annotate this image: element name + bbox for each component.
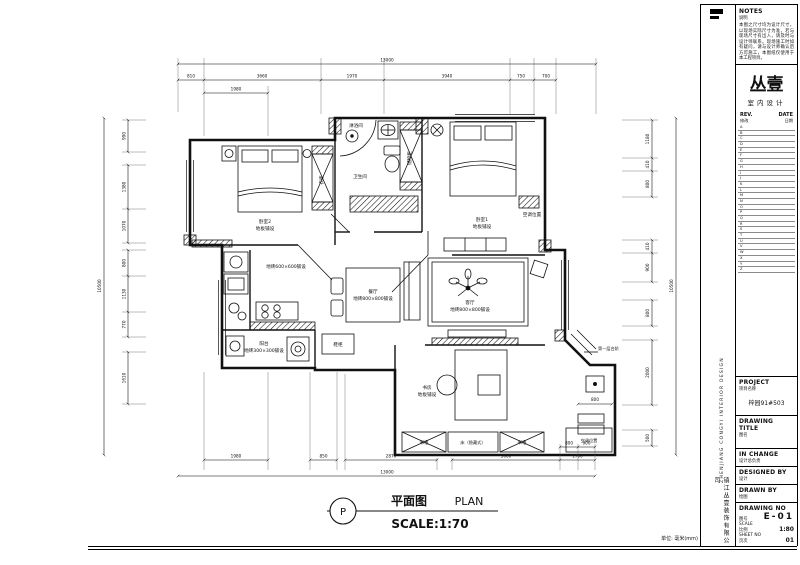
company-name-cn: 镇江丛壹装饰有限公司 [712, 477, 730, 549]
outer-walls [190, 118, 615, 455]
dim-right-7: 2000 [645, 367, 650, 378]
in-change-label: IN CHANGE [739, 451, 794, 458]
revision-rows: ABCDEFGHIJKLMNOPQRSTUVWXYZ [736, 125, 797, 273]
in-change-label-cn: 设计总负责 [739, 458, 794, 464]
drawn-by-section: DRAWN BY 绘图 [736, 484, 797, 502]
label-wardrobe: 衣柜 [318, 175, 325, 185]
dim-right-overall: 10500 [669, 279, 674, 293]
label-dining-floor: 地砖800×800铺设 [353, 295, 393, 302]
label-living-floor: 地砖800×800铺设 [450, 306, 490, 313]
dim-left-5: 1130 [122, 288, 127, 299]
notes-title: NOTES [739, 8, 794, 15]
plan-title-scale: SCALE:1:70 [391, 517, 468, 531]
drawn-by-label: DRAWN BY [739, 487, 794, 494]
dim-right-3: 800 [645, 180, 650, 188]
living-rug-icon [428, 258, 548, 337]
drawing-title-section: DRAWING TITLE 图名 [736, 415, 797, 448]
dim-left-overall: 10500 [97, 279, 102, 293]
label-shoe-cabinet: 鞋柜 [333, 341, 343, 348]
notes-subtitle: 说明 [739, 15, 794, 21]
kitchen-counter-icon [224, 252, 298, 320]
label-living: 客厅 [465, 299, 475, 306]
bed2-icon [222, 146, 311, 212]
scale-label: SCALE [739, 522, 753, 527]
label-study-floor: 地板铺设 [418, 391, 437, 398]
drawing-sheet: 卧室2 地板铺设 衣柜 淋浴间 卫生间 储物柜 卧室1 地板铺设 空调位置 地砖… [0, 0, 800, 565]
dim-bottom-7: 1700 [572, 454, 583, 459]
sheet-no-label: SHEET NO [739, 533, 761, 538]
label-study: 书房 [422, 384, 432, 391]
label-bedroom1: 卧室1 [476, 216, 488, 223]
plan-title-marker: P [340, 507, 346, 518]
sheet-bottom-border [88, 546, 797, 550]
project-value: 梓园91#503 [739, 398, 794, 407]
dim-left-3: 1070 [122, 220, 127, 231]
sheet-no-label-cn: 页次 [739, 539, 748, 544]
drawing-no-section: DRAWING NO 图号 E-01 SCALE 比例 1:80 SHEET N… [736, 502, 797, 546]
dimension-texts: 13000 810 3660 1970 3940 750 700 1980 19… [97, 58, 674, 475]
toilet-icon [384, 146, 400, 172]
designed-by-label: DESIGNED BY [739, 469, 794, 476]
registration-mark [710, 9, 723, 14]
revision-header-cn: 修改 日期 [736, 118, 797, 125]
dim-right-1: 1180 [645, 133, 650, 144]
date-label-cn: 日期 [785, 118, 793, 124]
label-balcony: 阳台 [259, 340, 269, 347]
dim-right-2: 410 [645, 160, 650, 168]
interior-walls [222, 118, 545, 370]
brand-logo: 丛壹 [736, 70, 797, 95]
title-block-panel: ZHENJIANG CONGYI INTERIOR DESIGN 镇江丛壹装饰有… [700, 4, 798, 546]
dim-top-4: 3940 [442, 74, 453, 79]
plan-title-block: P 平面图 PLAN SCALE:1:70 [327, 494, 498, 531]
drawing-title-label: DRAWING TITLE [739, 418, 794, 432]
plant-icon [449, 269, 487, 296]
company-name-en: ZHENJIANG CONGYI INTERIOR DESIGN [720, 333, 725, 483]
dim-bottom-2: 850 [320, 454, 328, 459]
label-kitchen-floor: 地砖600×600铺设 [266, 263, 306, 270]
notes-body: 本图之尺寸均为设计尺寸，以现场实际尺寸为准，若与现场尺寸有出入，请及时与设计师联… [739, 23, 794, 62]
project-label: PROJECT [739, 379, 794, 386]
dim-bottom-1: 1980 [231, 454, 242, 459]
dim-bottom-3: 2870 [386, 454, 397, 459]
dim-left-6: 770 [122, 320, 127, 328]
label-storage: 储物柜 [406, 151, 413, 165]
revision-header-en: REV. DATE [736, 111, 797, 118]
desk-icon [437, 350, 507, 420]
dim-top-5: 750 [517, 74, 525, 79]
revision-table: REV. DATE 修改 日期 ABCDEFGHIJKLMNOPQRSTUVWX… [736, 111, 797, 273]
entry-fixtures-icon [566, 352, 612, 452]
dim-left-7: 1610 [122, 372, 127, 383]
dim-left-2: 1380 [122, 181, 127, 192]
dim-left-1: 990 [122, 132, 127, 140]
brand-subtitle: 室内设计 [736, 97, 797, 107]
designed-by-section: DESIGNED BY 设计 [736, 466, 797, 484]
title-block-column: NOTES 说明 本图之尺寸均为设计尺寸，以现场实际尺寸为准，若与现场尺寸有出入… [736, 5, 797, 546]
notes-section: NOTES 说明 本图之尺寸均为设计尺寸，以现场实际尺寸为准，若与现场尺寸有出入… [736, 5, 797, 65]
dim-bottom-4: 3600 [501, 454, 512, 459]
label-balcony-floor: 地砖300×300铺设 [244, 347, 284, 354]
plan-title-cn: 平面图 [391, 494, 427, 508]
designed-by-label-cn: 设计 [739, 476, 794, 482]
label-bathroom: 卫生间 [353, 173, 367, 180]
washbasin-icon [378, 121, 398, 139]
sheet-no-value: 01 [786, 537, 794, 544]
label-bookcase-left: 书柜 [419, 439, 429, 446]
dim-right-4: 410 [645, 242, 650, 250]
bed1-icon [431, 122, 516, 251]
label-bedroom1-floor: 地板铺设 [473, 223, 492, 230]
project-label-cn: 项目名称 [739, 386, 794, 392]
drawing-no-value: E-01 [764, 512, 794, 522]
dim-top-sub: 1980 [231, 87, 242, 92]
dim-bottom-overall: 13000 [380, 470, 394, 475]
dim-top-3: 1970 [347, 74, 358, 79]
label-bedroom2: 卧室2 [259, 218, 271, 225]
dimension-extension-lines [122, 58, 658, 470]
dim-right-8: 500 [645, 434, 650, 442]
dim-top-6: 700 [542, 74, 550, 79]
dim-right-5: 900 [645, 263, 650, 271]
label-ac-mid: 空调位置 [523, 211, 542, 218]
rev-label-cn: 修改 [740, 118, 748, 124]
dim-bottom-5: 800 [565, 441, 573, 446]
scale-value: 1:80 [779, 526, 794, 533]
units-note: 单位: 毫米(mm) [661, 535, 698, 542]
project-section: PROJECT 项目名称 梓园91#503 [736, 376, 797, 415]
label-bedroom2-floor: 地板铺设 [256, 225, 275, 232]
in-change-section: IN CHANGE 设计总负责 [736, 448, 797, 466]
brand-block: 丛壹 室内设计 [736, 65, 797, 111]
floor-plan-canvas: 卧室2 地板铺设 衣柜 淋浴间 卫生间 储物柜 卧室1 地板铺设 空调位置 地砖… [0, 0, 800, 565]
dim-top-overall: 13000 [380, 58, 394, 63]
drawing-no-label: DRAWING NO [739, 505, 794, 512]
label-hidden-bed: 床（隐藏式） [460, 439, 485, 446]
registration-mark [710, 16, 719, 19]
plan-title-en: PLAN [455, 495, 484, 508]
label-shower: 淋浴间 [349, 122, 363, 129]
panel-spacer [736, 273, 797, 376]
drawn-by-label-cn: 绘图 [739, 494, 794, 500]
label-steps: 第一层台阶 [598, 345, 620, 352]
windows [187, 115, 569, 356]
dim-left-4: 800 [122, 259, 127, 267]
dim-top-1: 810 [187, 74, 195, 79]
label-dining: 餐厅 [368, 288, 378, 295]
dim-right-6: 800 [645, 309, 650, 317]
dim-top-2: 3660 [257, 74, 268, 79]
dim-study-800: 800 [591, 397, 599, 402]
company-strip: ZHENJIANG CONGYI INTERIOR DESIGN 镇江丛壹装饰有… [701, 5, 736, 546]
label-bookcase-right: 书柜 [517, 439, 527, 446]
dim-bottom-6: 900 [583, 441, 591, 446]
